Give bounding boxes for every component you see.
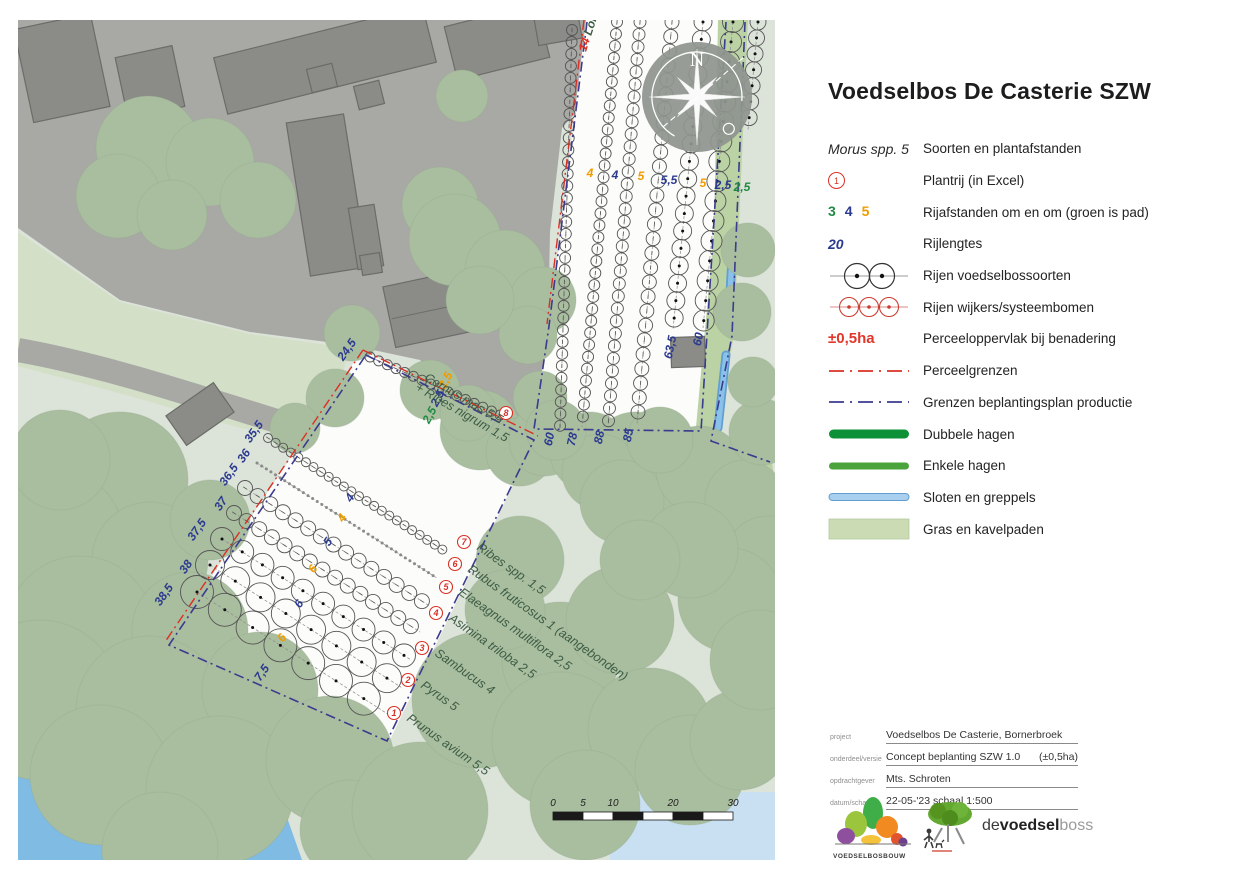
project-table-value: Mts. Schroten <box>886 773 951 785</box>
legend-symbol-dashdot-red <box>828 367 923 375</box>
legend-label: Grenzen beplantingsplan productie <box>923 395 1132 410</box>
plant-row-number: 2 <box>404 675 410 685</box>
map-label: 5,5 <box>661 173 678 187</box>
legend-row: Grenzen beplantingsplan productie <box>828 387 1228 419</box>
legend-label: Sloten en greppels <box>923 490 1036 505</box>
project-table-label: project <box>830 734 886 744</box>
voedselbosbouw-logo-icon <box>833 796 913 848</box>
brand-part-voedsel: voedsel <box>1000 817 1060 834</box>
plant-row-marker: 1 <box>388 707 401 720</box>
site-plan-svg: N051020304455,552,52,56078888563,5602,52… <box>18 20 775 860</box>
scale-tick: 10 <box>607 798 619 809</box>
legend-symbol-species-text: Morus spp. 5 <box>828 141 923 157</box>
scale-tick: 20 <box>666 798 679 809</box>
planting-plan-page: N051020304455,552,52,56078888563,5602,52… <box>0 0 1240 876</box>
legend-row: Perceelgrenzen <box>828 355 1228 387</box>
project-table-label: opdrachtgever <box>830 778 886 788</box>
legend-symbol-colored-numbers: 345 <box>828 203 923 221</box>
plant-row-marker: 4 <box>430 607 443 620</box>
legend-row: 345Rijafstanden om en om (groen is pad) <box>828 196 1228 228</box>
map-label: 2,5 <box>714 178 732 192</box>
legend-label: Rijen wijkers/systeembomen <box>923 300 1094 315</box>
plant-row-marker: 5 <box>440 581 453 594</box>
plant-row-number: 3 <box>419 643 424 653</box>
page-title: Voedselbos De Casterie SZW <box>828 78 1151 105</box>
map-label: 4 <box>586 166 594 180</box>
plant-row-marker: 2 <box>402 674 415 687</box>
scale-tick: 5 <box>580 798 586 809</box>
map-label: 4 <box>611 168 619 182</box>
legend-label: Rijen voedselbossoorten <box>923 268 1071 283</box>
map-label: 5 <box>700 176 707 190</box>
scale-tick: 30 <box>727 798 739 809</box>
devoedselboss-logo: devoedselboss <box>918 798 1093 854</box>
building <box>360 253 383 276</box>
project-table-value: Voedselbos De Casterie, Bornerbroek <box>886 729 1062 741</box>
plant-row-marker: 6 <box>449 558 462 571</box>
legend-label: Perceelgrenzen <box>923 363 1018 378</box>
info-panel: Voedselbos De Casterie SZW Morus spp. 5S… <box>800 0 1240 876</box>
project-table-label: onderdeel/versie <box>830 756 886 766</box>
legend-symbol-black-tree-row <box>828 261 923 291</box>
legend-row: Dubbele hagen <box>828 418 1228 450</box>
site-plan-map: N051020304455,552,52,56078888563,5602,52… <box>18 20 775 860</box>
project-table-row: opdrachtgeverMts. Schroten <box>830 766 1078 788</box>
devoedselboss-wordmark: devoedselboss <box>982 817 1093 835</box>
legend-row: 1Plantrij (in Excel) <box>828 165 1228 197</box>
legend-symbol-swatch-lightgreen <box>828 518 923 540</box>
legend-symbol-bar-green <box>828 461 923 471</box>
legend-row: Rijen wijkers/systeembomen <box>828 291 1228 323</box>
legend-row: Sloten en greppels <box>828 482 1228 514</box>
legend-label: Rijafstanden om en om (groen is pad) <box>923 205 1149 220</box>
voedselbosbouw-logo: VOEDSELBOSBOUW <box>833 796 913 860</box>
legend-symbol-bar-darkgreen <box>828 428 923 440</box>
project-table-row: projectVoedselbos De Casterie, Bornerbro… <box>830 722 1078 744</box>
map-label: 2,5 <box>733 180 751 194</box>
legend-label: Perceeloppervlak bij benadering <box>923 331 1116 346</box>
legend-symbol-red-tree-row <box>828 295 923 319</box>
project-table-extra: (±0,5ha) <box>1039 751 1078 763</box>
legend-label: Gras en kavelpaden <box>923 522 1044 537</box>
devoedselboss-logo-icon <box>918 798 976 854</box>
legend-label: Rijlengtes <box>923 236 982 251</box>
legend-symbol-circled-number: 1 <box>828 172 923 189</box>
compass-rose: N <box>642 42 752 152</box>
legend-row: Gras en kavelpaden <box>828 513 1228 545</box>
plant-row-number: 1 <box>391 708 396 718</box>
legend-symbol-bar-blue <box>828 492 923 502</box>
legend: Morus spp. 5Soorten en plantafstanden1Pl… <box>828 133 1228 545</box>
plant-row-marker: 7 <box>458 536 471 549</box>
legend-symbol-row-length: 20 <box>828 236 923 252</box>
map-label: 5 <box>638 169 645 183</box>
legend-label: Enkele hagen <box>923 458 1006 473</box>
plant-row-number: 4 <box>432 608 438 618</box>
project-table-value: Concept beplanting SZW 1.0 <box>886 751 1020 763</box>
legend-symbol-area-value: ±0,5ha <box>828 330 923 347</box>
legend-label: Dubbele hagen <box>923 427 1015 442</box>
project-table-row: onderdeel/versieConcept beplanting SZW 1… <box>830 744 1078 766</box>
brand-part-de: de <box>982 817 1000 834</box>
legend-row: ±0,5haPerceeloppervlak bij benadering <box>828 323 1228 355</box>
brand-part-boss: boss <box>1059 817 1093 834</box>
legend-label: Plantrij (in Excel) <box>923 173 1024 188</box>
compass-north-label: N <box>690 49 704 71</box>
legend-row: 20Rijlengtes <box>828 228 1228 260</box>
legend-label: Soorten en plantafstanden <box>923 141 1081 156</box>
legend-row: Enkele hagen <box>828 450 1228 482</box>
legend-symbol-dashdot-indigo <box>828 398 923 406</box>
plant-row-marker: 3 <box>416 642 429 655</box>
scale-tick: 0 <box>550 798 556 809</box>
legend-row: Morus spp. 5Soorten en plantafstanden <box>828 133 1228 165</box>
legend-row: Rijen voedselbossoorten <box>828 260 1228 292</box>
voedselbosbouw-logo-text: VOEDSELBOSBOUW <box>833 853 913 860</box>
